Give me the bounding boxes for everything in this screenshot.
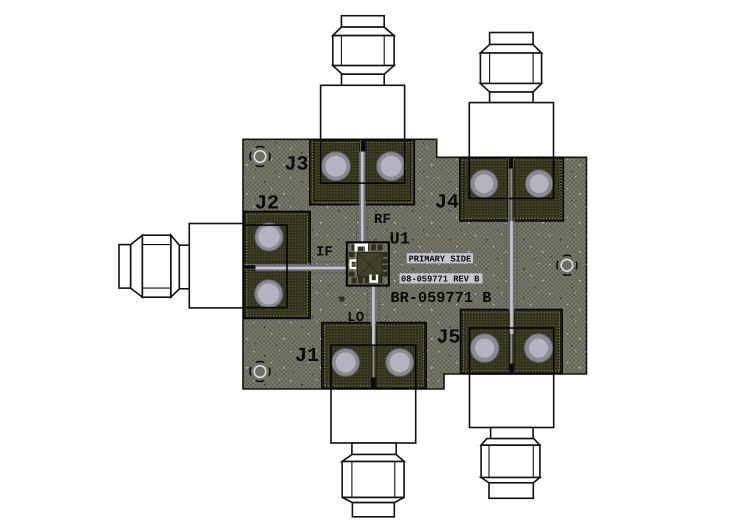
svg-text:LO: LO — [347, 310, 364, 326]
svg-text:J4: J4 — [435, 191, 459, 214]
svg-text:J2: J2 — [255, 193, 279, 216]
svg-text:BR-059771 B: BR-059771 B — [390, 289, 491, 307]
svg-text:U1: U1 — [390, 231, 410, 250]
svg-text:08-059771 REV B: 08-059771 REV B — [401, 275, 480, 285]
svg-text:J1: J1 — [295, 345, 319, 368]
svg-text:IF: IF — [316, 245, 333, 261]
svg-text:PRIMARY SIDE: PRIMARY SIDE — [409, 254, 472, 264]
svg-text:J3: J3 — [285, 154, 309, 177]
svg-text:RF: RF — [374, 212, 391, 228]
svg-text:J5: J5 — [437, 326, 461, 349]
